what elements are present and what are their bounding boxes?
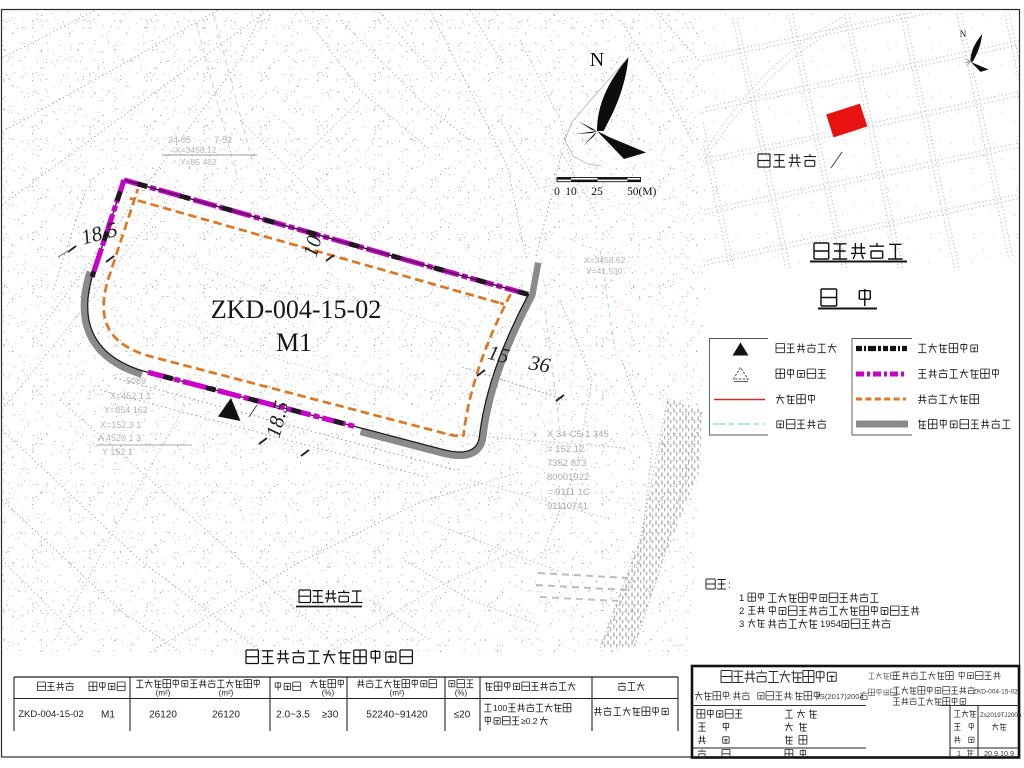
svg-text:3: 3: [739, 619, 744, 630]
svg-text:X 34-C5-1 345: X 34-C5-1 345: [547, 429, 609, 440]
svg-text:Y=85 462: Y=85 462: [180, 157, 217, 167]
svg-text:26120: 26120: [212, 710, 240, 721]
svg-text:5089: 5089: [126, 376, 146, 386]
svg-text:= 152 12: = 152 12: [547, 444, 584, 455]
svg-text:34-05: 34-05: [168, 135, 191, 145]
svg-text:36: 36: [526, 350, 552, 378]
svg-text:50(M): 50(M): [627, 186, 657, 198]
svg-text:Y=854 162: Y=854 162: [104, 405, 148, 415]
svg-text:1954: 1954: [820, 619, 841, 630]
svg-text:Y=41.530: Y=41.530: [586, 266, 623, 276]
svg-text:ZKD-004-15-02: ZKD-004-15-02: [211, 295, 381, 324]
svg-text:100: 100: [493, 703, 507, 713]
svg-text:ZKD-004-15-02: ZKD-004-15-02: [18, 709, 83, 720]
svg-text:N: N: [590, 49, 604, 71]
svg-text:80001922: 80001922: [547, 472, 589, 483]
svg-text:10: 10: [565, 186, 577, 198]
svg-text:A 4520 1 3: A 4520 1 3: [98, 433, 141, 443]
svg-text:X=3458.62: X=3458.62: [584, 255, 626, 265]
svg-text::: :: [791, 691, 793, 701]
svg-text:Y 152 1: Y 152 1: [102, 447, 133, 457]
svg-text:X=3458.12: X=3458.12: [175, 145, 217, 155]
svg-text:(m²): (m²): [219, 689, 234, 698]
svg-text:7-52: 7-52: [214, 135, 232, 145]
svg-text:(%): (%): [455, 689, 468, 698]
svg-text:ZKD-004-15-02: ZKD-004-15-02: [973, 689, 1018, 696]
svg-text:X=152.3 1: X=152.3 1: [100, 420, 141, 430]
svg-text:1: 1: [739, 593, 744, 604]
svg-text:20.9.10.9: 20.9.10.9: [984, 749, 1014, 758]
svg-text:25: 25: [591, 186, 603, 198]
svg-text:(m²): (m²): [156, 689, 171, 698]
svg-text:≤20: ≤20: [454, 710, 471, 721]
svg-text:JS(2017)2004: JS(2017)2004: [816, 692, 864, 701]
svg-text:(%): (%): [322, 689, 335, 698]
svg-text:1: 1: [957, 749, 961, 758]
svg-text:7352 873: 7352 873: [547, 458, 587, 469]
svg-text:Zs2019TJ2006: Zs2019TJ2006: [980, 712, 1022, 719]
svg-text:X=452.1 1: X=452.1 1: [110, 391, 151, 401]
svg-text:0: 0: [554, 186, 560, 198]
svg-text:2.0~3.5: 2.0~3.5: [276, 710, 310, 721]
svg-text:52240~91420: 52240~91420: [366, 710, 428, 721]
svg-text:x: x: [533, 430, 537, 439]
svg-text:≥0.2: ≥0.2: [521, 716, 538, 726]
svg-text:≥30: ≥30: [322, 710, 339, 721]
svg-text:= 9111 1C: = 9111 1C: [547, 487, 590, 498]
svg-text::: :: [728, 580, 731, 591]
svg-text:N: N: [960, 29, 967, 39]
svg-text:91110741: 91110741: [547, 501, 588, 512]
svg-text:(m²): (m²): [390, 689, 405, 698]
svg-text:26120: 26120: [149, 710, 177, 721]
svg-text::: :: [729, 691, 731, 701]
svg-text:M1: M1: [101, 710, 115, 721]
svg-text:M1: M1: [276, 328, 312, 357]
svg-text:2: 2: [739, 606, 744, 617]
